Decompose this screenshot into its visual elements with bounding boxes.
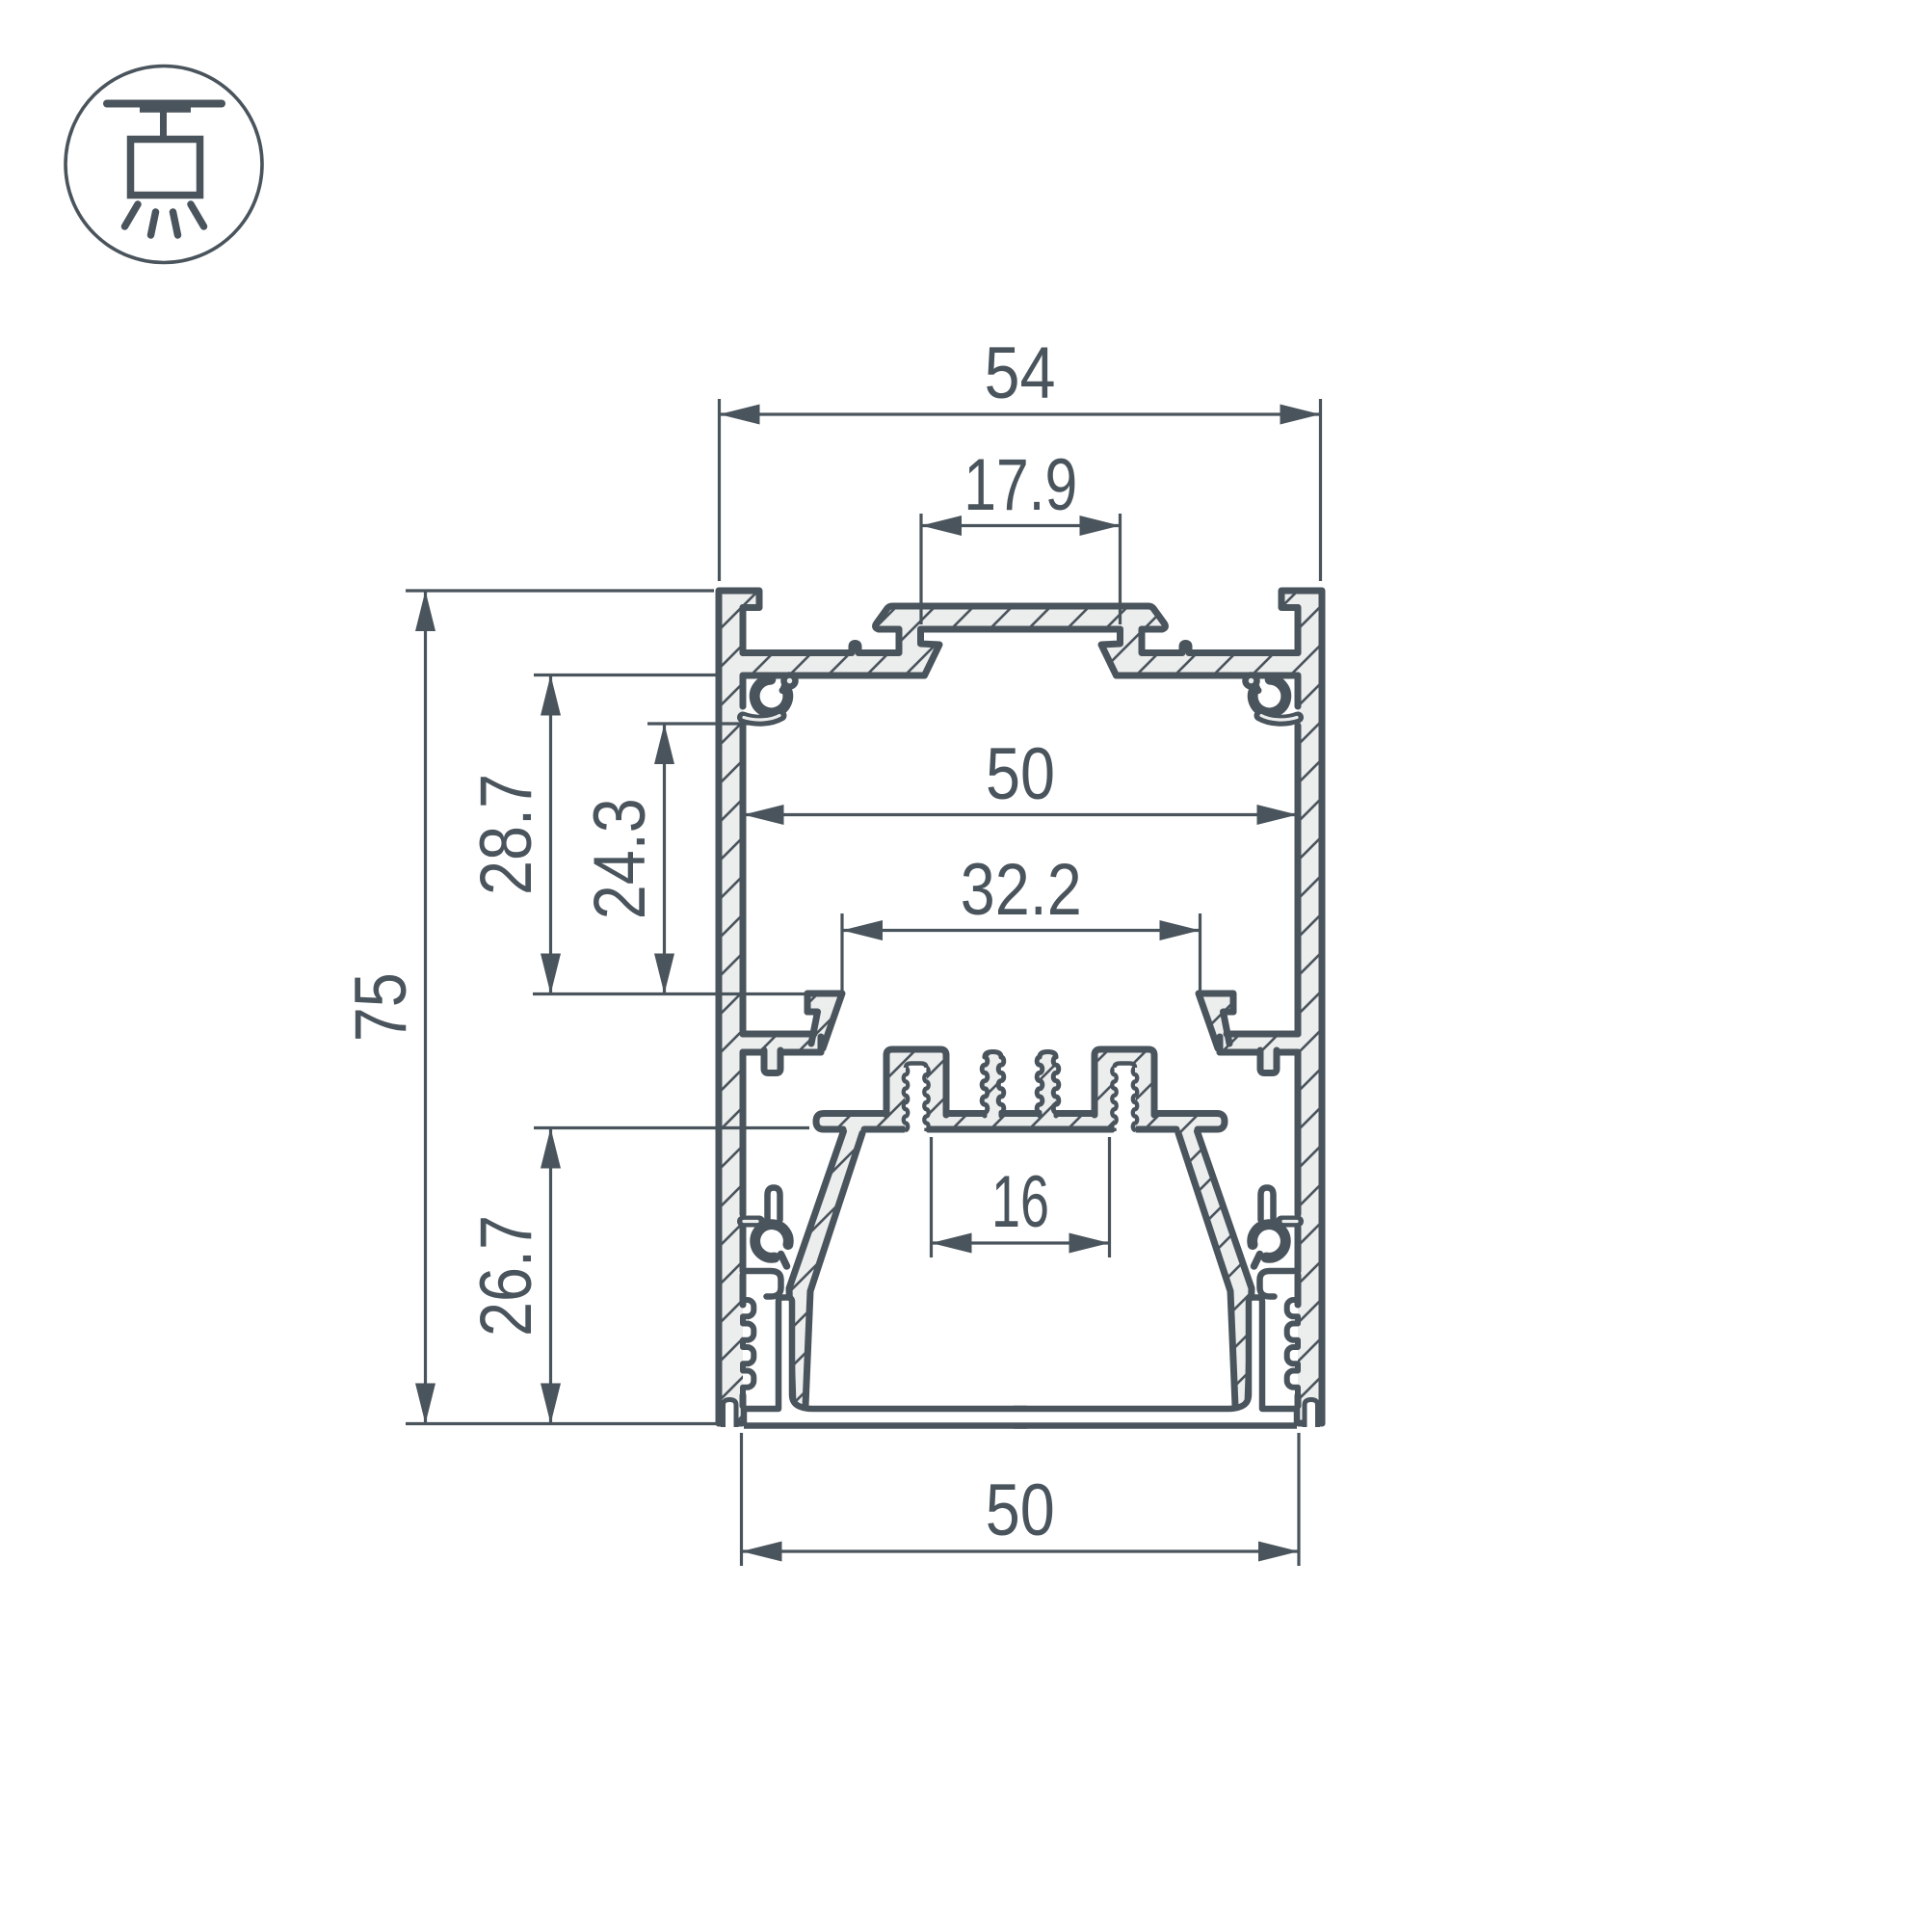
svg-text:50: 50	[986, 733, 1055, 815]
svg-text:54: 54	[985, 332, 1056, 414]
svg-text:24.3: 24.3	[579, 798, 661, 919]
svg-text:50: 50	[986, 1469, 1055, 1551]
svg-text:32.2: 32.2	[961, 849, 1082, 931]
svg-text:28.7: 28.7	[465, 774, 547, 895]
svg-text:16: 16	[991, 1161, 1049, 1243]
svg-text:17.9: 17.9	[963, 444, 1077, 526]
svg-text:75: 75	[340, 972, 422, 1042]
svg-text:26.7: 26.7	[465, 1215, 547, 1337]
